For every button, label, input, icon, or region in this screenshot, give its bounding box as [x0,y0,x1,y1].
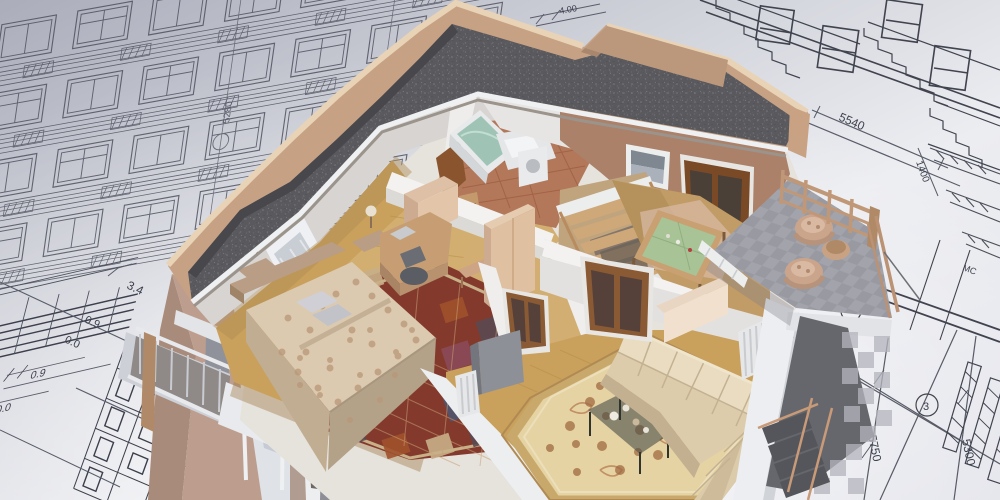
svg-text:3: 3 [923,401,929,413]
